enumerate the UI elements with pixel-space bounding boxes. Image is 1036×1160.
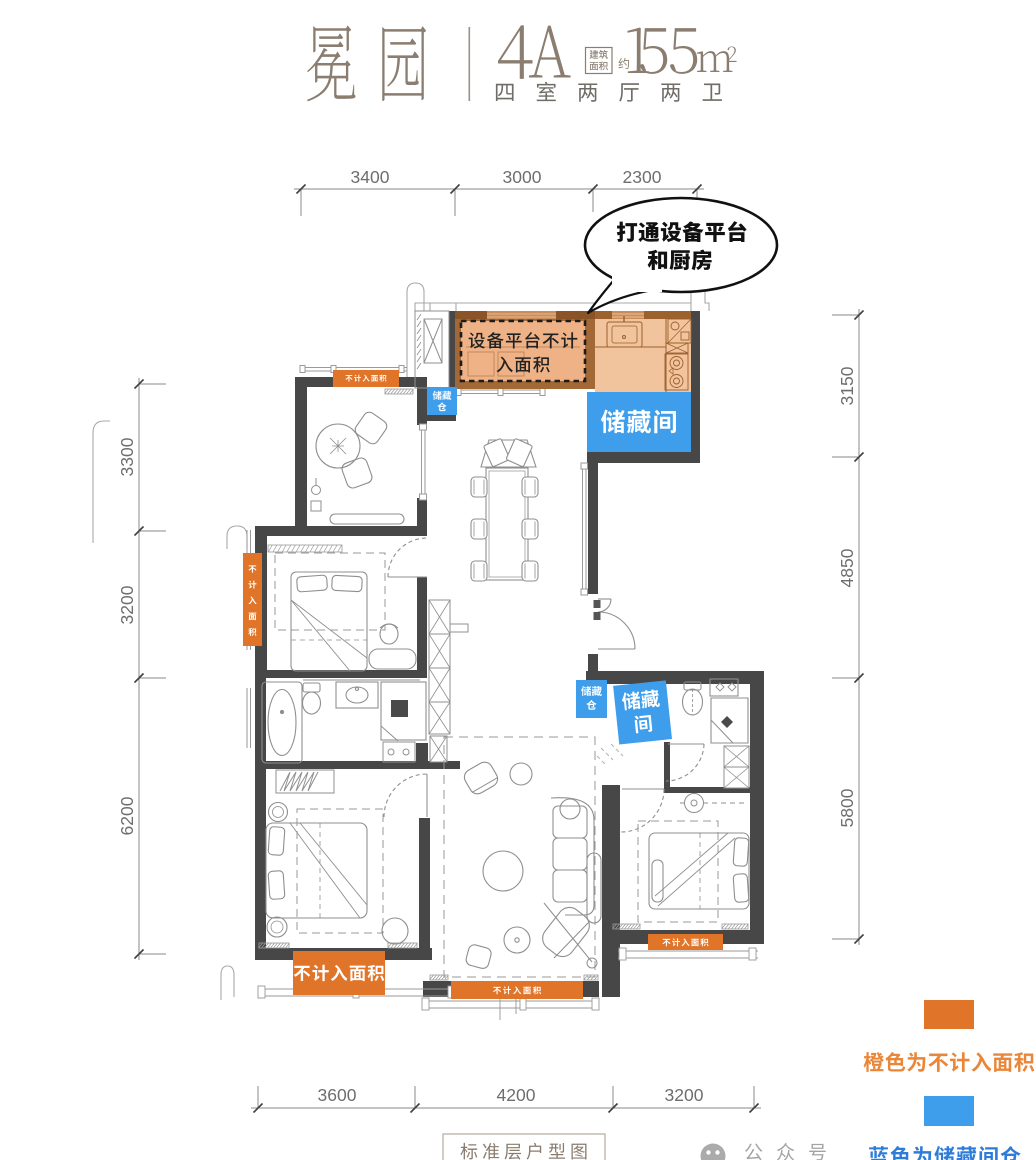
svg-text:4850: 4850 [837,548,857,587]
svg-text:3400: 3400 [351,167,390,187]
svg-text:3200: 3200 [665,1085,704,1105]
svg-text:6200: 6200 [117,796,137,835]
svg-text:3600: 3600 [318,1085,357,1105]
svg-text:2300: 2300 [623,167,662,187]
svg-text:3200: 3200 [117,585,137,624]
svg-text:4200: 4200 [497,1085,536,1105]
svg-text:3150: 3150 [837,366,857,405]
svg-text:3000: 3000 [503,167,542,187]
svg-text:3300: 3300 [117,437,137,476]
svg-text:5800: 5800 [837,788,857,827]
